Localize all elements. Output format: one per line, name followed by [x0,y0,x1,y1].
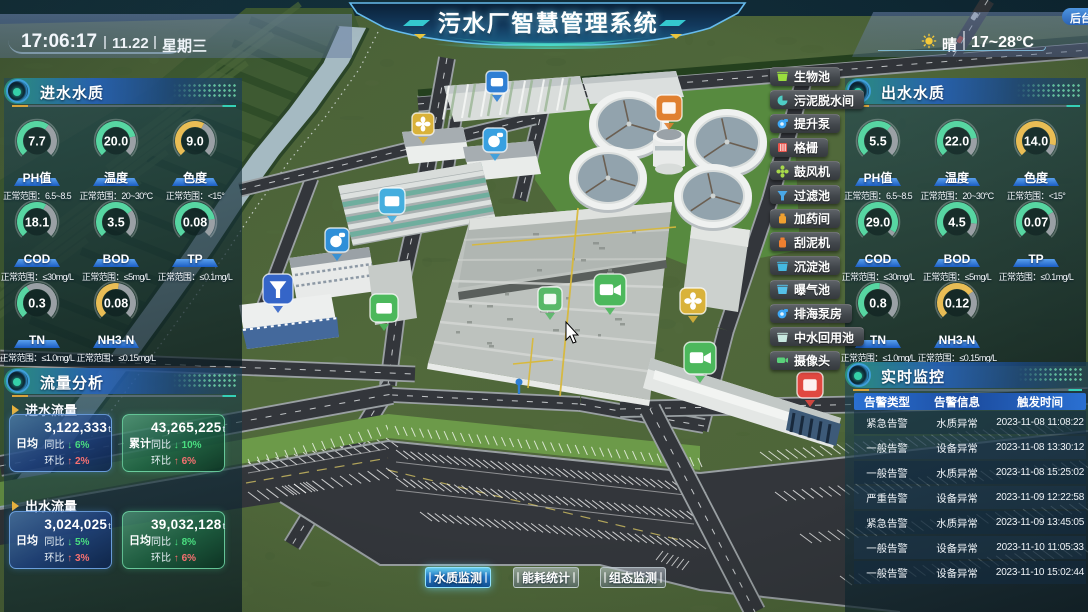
svg-text:14.0: 14.0 [1024,135,1048,149]
svg-text:0.8: 0.8 [869,297,886,311]
svg-text:0.08: 0.08 [183,216,207,230]
svg-text:3.5: 3.5 [107,216,124,230]
svg-text:9.0: 9.0 [186,135,203,149]
svg-text:20.0: 20.0 [104,135,128,149]
svg-text:4.5: 4.5 [948,216,965,230]
svg-text:0.12: 0.12 [945,297,969,311]
svg-text:22.0: 22.0 [945,135,969,149]
svg-text:5.5: 5.5 [869,135,886,149]
svg-text:7.7: 7.7 [28,135,45,149]
svg-text:29.0: 29.0 [866,216,890,230]
svg-text:0.07: 0.07 [1024,216,1048,230]
svg-text:0.08: 0.08 [104,297,128,311]
svg-text:0.3: 0.3 [28,297,45,311]
svg-text:18.1: 18.1 [25,216,49,230]
